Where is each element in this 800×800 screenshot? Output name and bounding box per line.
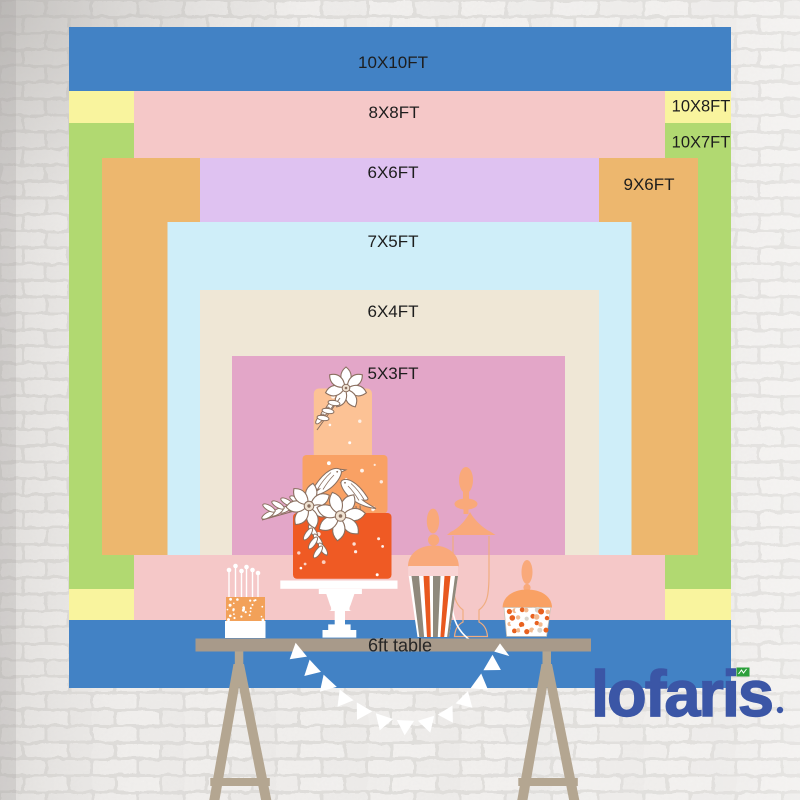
svg-text:10X7FT: 10X7FT: [672, 134, 731, 152]
svg-text:10X10FT: 10X10FT: [358, 53, 428, 72]
svg-text:6ft table: 6ft table: [368, 636, 432, 656]
svg-text:6X6FT: 6X6FT: [367, 163, 418, 182]
svg-text:10X8FT: 10X8FT: [672, 98, 731, 116]
svg-text:9X6FT: 9X6FT: [623, 175, 674, 194]
svg-text:7X5FT: 7X5FT: [367, 232, 418, 251]
svg-text:6X4FT: 6X4FT: [367, 302, 418, 321]
svg-text:8X8FT: 8X8FT: [368, 103, 419, 122]
svg-text:5X3FT: 5X3FT: [367, 364, 418, 383]
